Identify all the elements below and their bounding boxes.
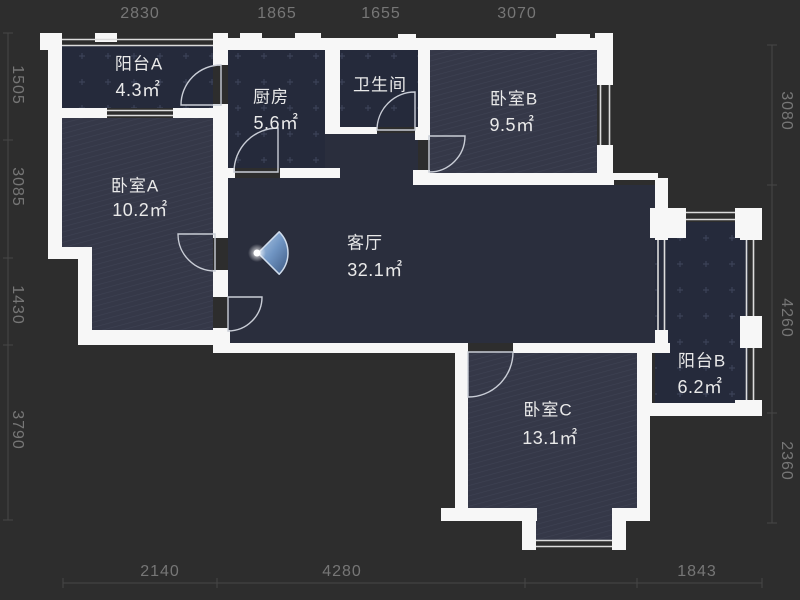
dimension-right-0: 3080: [778, 91, 794, 131]
dimension-top-3: 3070: [497, 6, 537, 22]
dimension-right-1: 4260: [778, 298, 794, 338]
room-area-balcony-b: 6.2㎡: [677, 378, 722, 396]
room-label-bedroom-b: 卧室B: [490, 91, 538, 108]
dimension-top-1: 1865: [257, 6, 297, 22]
room-bedroom-b: [430, 50, 597, 173]
room-label-balcony-b: 阳台B: [678, 353, 726, 370]
dimension-bottom-0: 2140: [140, 564, 180, 580]
room-label-balcony-a: 阳台A: [115, 56, 163, 73]
room-area-kitchen: 5.6㎡: [253, 114, 298, 132]
room-area-balcony-a: 4.3㎡: [115, 81, 160, 99]
room-area-bedroom-b: 9.5㎡: [489, 116, 534, 134]
dimension-left-0: 1505: [9, 65, 25, 105]
dimension-left-3: 3790: [9, 410, 25, 450]
room-label-bathroom: 卫生间: [353, 77, 407, 94]
dimension-left-1: 3085: [9, 167, 25, 207]
dimension-top-0: 2830: [120, 6, 160, 22]
room-label-bedroom-a: 卧室A: [111, 178, 159, 195]
dimension-bottom-1: 4280: [322, 564, 362, 580]
room-area-bedroom-a: 10.2㎡: [112, 201, 168, 219]
dimension-bottom-2: 1843: [677, 564, 717, 580]
room-label-living-room: 客厅: [347, 235, 383, 252]
room-balcony-b: [655, 222, 748, 403]
floor-plan-canvas: 阳台A 4.3㎡ 厨房 5.6㎡ 卫生间 卧室B 9.5㎡ 卧室A 10.2㎡ …: [0, 0, 800, 600]
room-kitchen: [228, 48, 325, 168]
dimension-left-2: 1430: [9, 285, 25, 325]
room-label-kitchen: 厨房: [253, 89, 289, 106]
room-label-bedroom-c: 卧室C: [523, 402, 572, 419]
room-area-bedroom-c: 13.1㎡: [522, 429, 578, 447]
dimension-right-2: 2360: [778, 441, 794, 481]
dimension-top-2: 1655: [361, 6, 401, 22]
room-area-living-room: 32.1㎡: [347, 261, 403, 279]
